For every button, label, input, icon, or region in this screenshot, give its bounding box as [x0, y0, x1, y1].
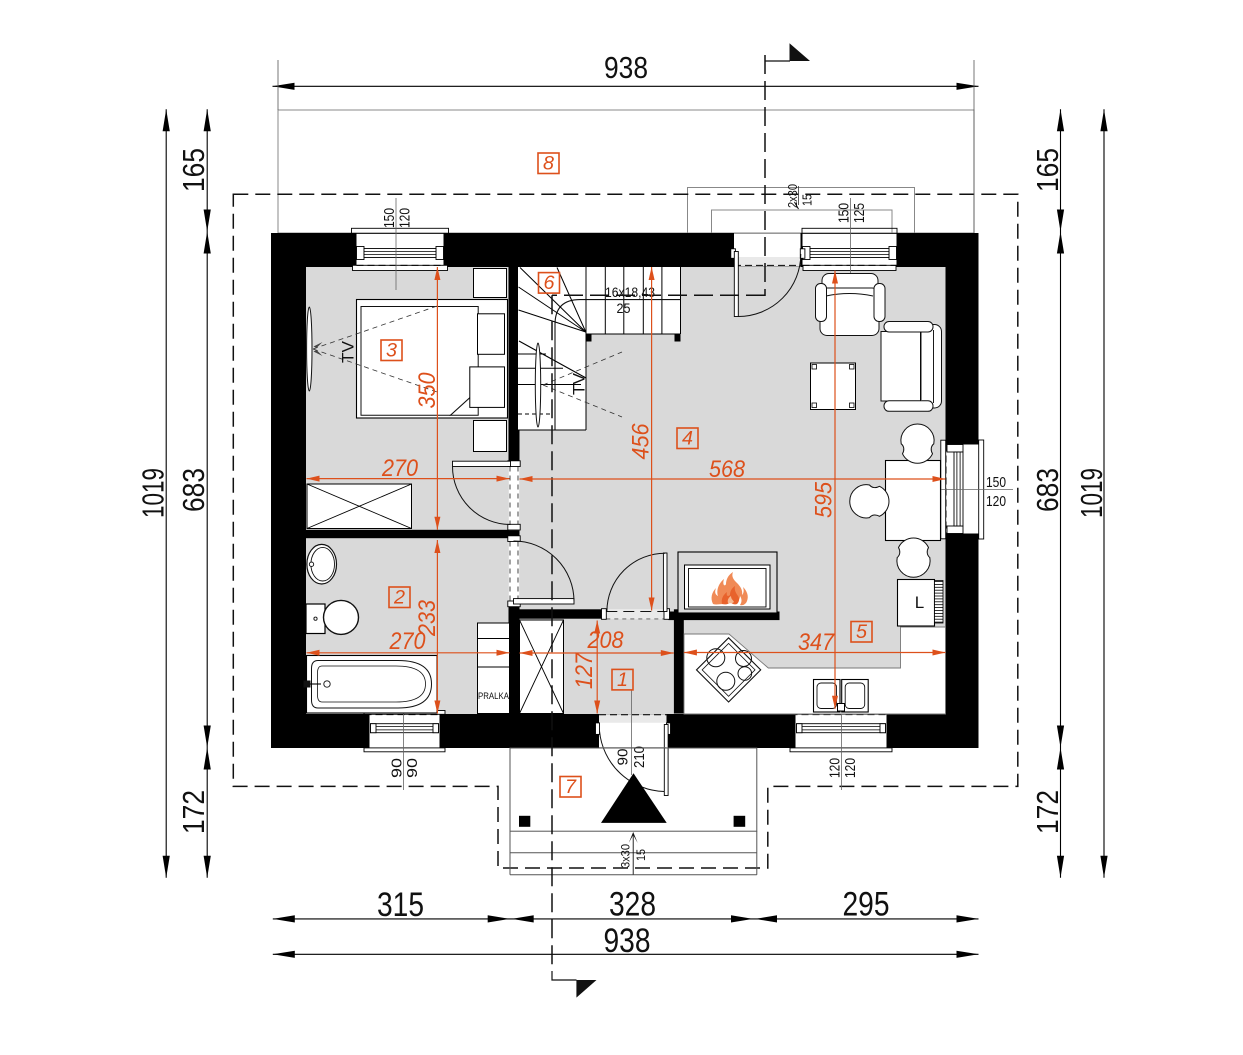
- svg-text:165: 165: [176, 148, 211, 192]
- svg-text:1: 1: [617, 670, 628, 691]
- svg-text:683: 683: [176, 468, 211, 512]
- svg-text:270: 270: [381, 455, 418, 482]
- svg-text:456: 456: [628, 423, 655, 460]
- svg-text:347: 347: [798, 629, 835, 656]
- svg-text:150: 150: [381, 208, 398, 228]
- svg-text:PRALKA: PRALKA: [478, 691, 509, 701]
- svg-text:90: 90: [404, 758, 421, 778]
- svg-text:120: 120: [397, 208, 414, 228]
- svg-text:120: 120: [827, 758, 844, 778]
- svg-text:315: 315: [377, 886, 424, 924]
- svg-text:90: 90: [389, 758, 406, 778]
- svg-text:328: 328: [609, 886, 656, 924]
- svg-text:210: 210: [631, 746, 648, 768]
- svg-text:208: 208: [587, 627, 624, 654]
- svg-text:165: 165: [1030, 148, 1065, 192]
- svg-text:938: 938: [604, 50, 648, 85]
- svg-text:6: 6: [544, 273, 555, 294]
- svg-text:TV: TV: [339, 340, 358, 363]
- svg-text:TV: TV: [570, 372, 589, 395]
- svg-text:L: L: [915, 593, 924, 612]
- svg-text:3x30: 3x30: [619, 844, 633, 868]
- svg-text:3: 3: [386, 341, 397, 362]
- svg-text:7: 7: [565, 777, 577, 798]
- svg-text:1019: 1019: [1074, 468, 1109, 518]
- svg-text:683: 683: [1030, 468, 1065, 512]
- svg-text:270: 270: [389, 628, 426, 655]
- svg-text:127: 127: [571, 652, 598, 689]
- svg-text:90: 90: [615, 749, 632, 766]
- svg-text:15: 15: [634, 849, 648, 861]
- svg-text:25: 25: [617, 301, 631, 316]
- svg-text:150: 150: [836, 203, 853, 223]
- svg-text:350: 350: [414, 372, 441, 409]
- svg-text:172: 172: [176, 790, 211, 834]
- svg-text:1019: 1019: [136, 468, 171, 518]
- svg-text:120: 120: [842, 758, 859, 778]
- svg-text:8: 8: [543, 154, 554, 175]
- svg-text:150: 150: [986, 474, 1006, 491]
- svg-text:125: 125: [851, 203, 868, 223]
- svg-text:4: 4: [682, 429, 693, 450]
- svg-text:16x18,43: 16x18,43: [605, 285, 655, 300]
- svg-text:5: 5: [856, 622, 867, 643]
- svg-text:172: 172: [1030, 790, 1065, 834]
- svg-text:2: 2: [393, 588, 405, 609]
- svg-text:120: 120: [986, 493, 1006, 510]
- svg-text:938: 938: [604, 922, 651, 960]
- svg-text:295: 295: [843, 886, 890, 924]
- svg-text:568: 568: [709, 456, 746, 483]
- svg-text:2x30: 2x30: [785, 184, 800, 208]
- svg-text:15: 15: [800, 194, 815, 206]
- svg-text:595: 595: [811, 481, 838, 518]
